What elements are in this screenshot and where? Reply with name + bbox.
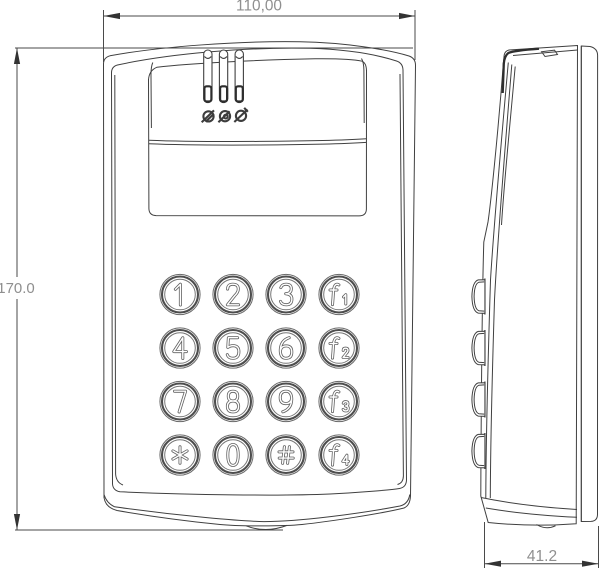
svg-text:170.0: 170.0 [0,280,35,297]
svg-text:41.2: 41.2 [527,548,557,565]
svg-text:110,00: 110,00 [236,0,282,15]
